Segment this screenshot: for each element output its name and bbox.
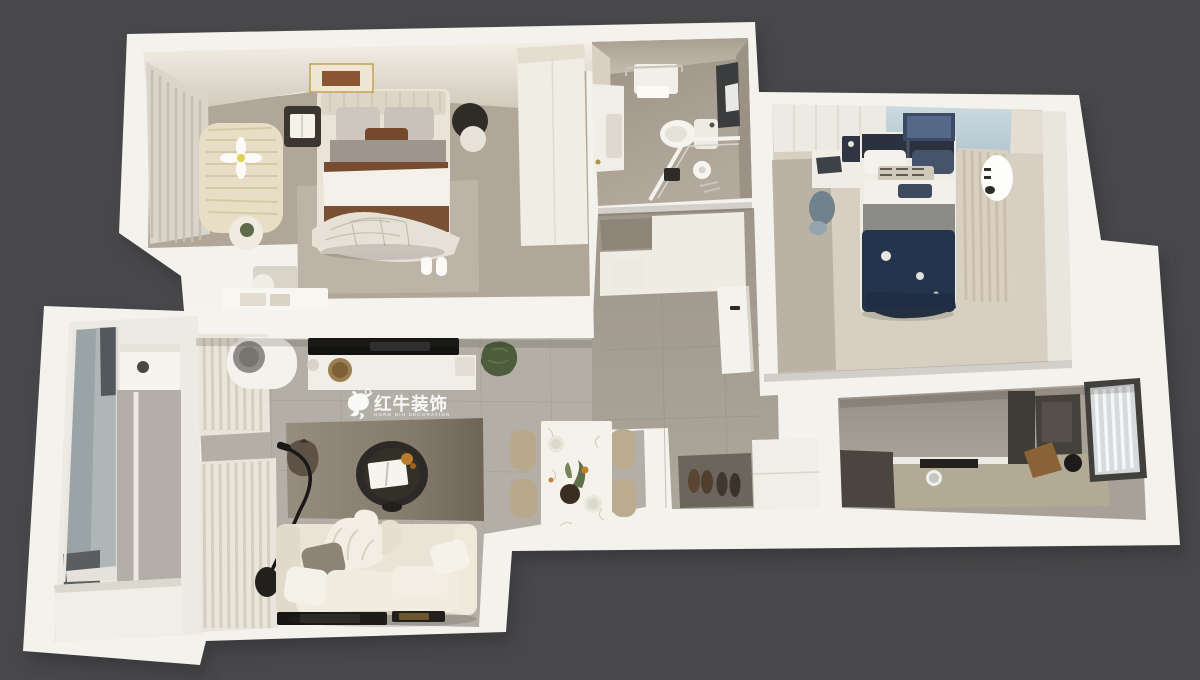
svg-text:红牛装饰: 红牛装饰 xyxy=(374,394,448,414)
svg-text:HONG NIU DECORATION: HONG NIU DECORATION xyxy=(374,412,450,417)
